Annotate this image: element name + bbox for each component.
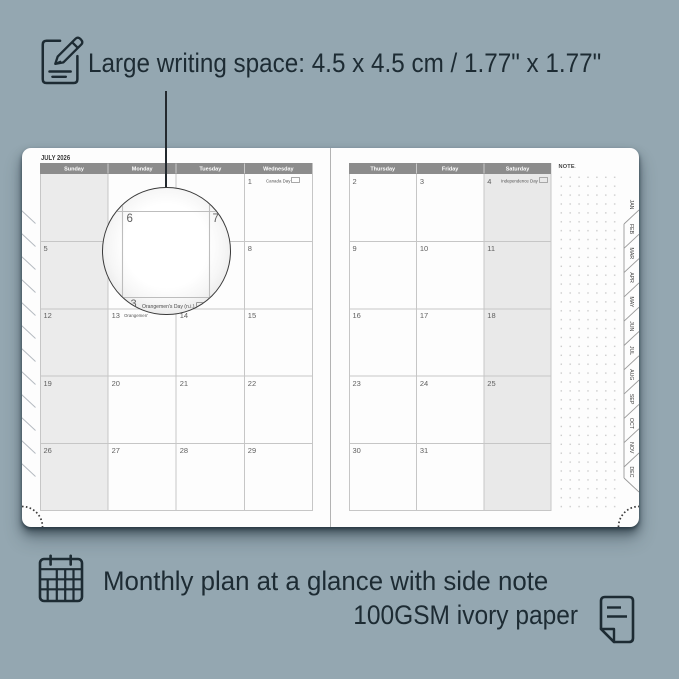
svg-text:AUG: AUG: [628, 369, 634, 380]
svg-text:APR: APR: [628, 272, 634, 283]
svg-text:OCT: OCT: [628, 418, 634, 430]
svg-text:Tuesday: Tuesday: [199, 167, 222, 173]
svg-text:SEP: SEP: [628, 394, 634, 405]
svg-text:JUL: JUL: [628, 346, 634, 355]
svg-text:Wednesday: Wednesday: [263, 167, 294, 173]
svg-text:Friday: Friday: [442, 167, 459, 173]
svg-text:MAR: MAR: [628, 248, 634, 260]
svg-text:MAY: MAY: [628, 296, 634, 307]
svg-text:Monday: Monday: [132, 167, 154, 173]
svg-text:JUN: JUN: [628, 321, 634, 331]
svg-text:DEC: DEC: [628, 467, 634, 478]
svg-text:FEB: FEB: [628, 224, 634, 235]
svg-text:Saturday: Saturday: [506, 167, 530, 173]
svg-text:JAN: JAN: [628, 200, 634, 210]
svg-text:NOV: NOV: [628, 442, 634, 454]
svg-text:Thursday: Thursday: [370, 167, 396, 173]
svg-text:Sunday: Sunday: [64, 167, 85, 173]
